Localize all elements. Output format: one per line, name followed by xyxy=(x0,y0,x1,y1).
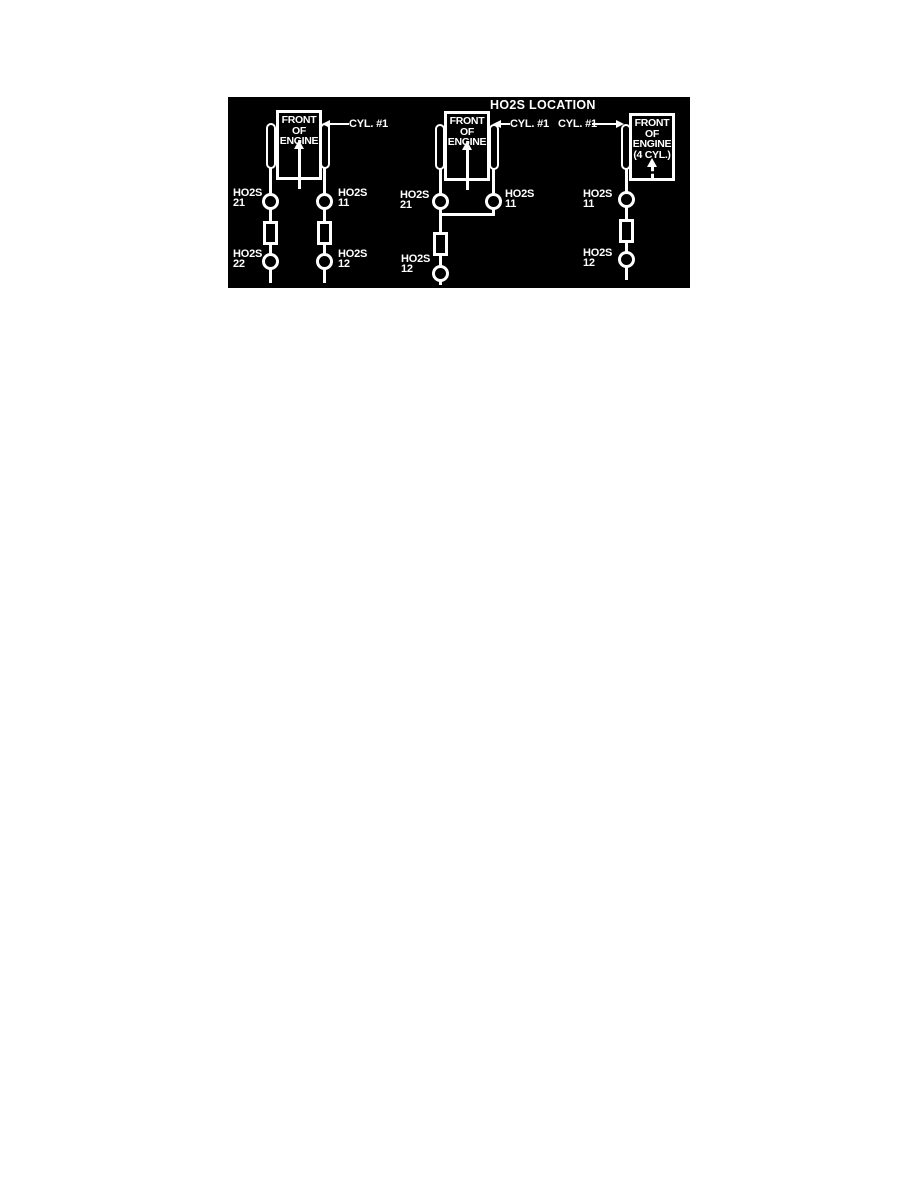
ho2s-22-sensor-icon xyxy=(262,253,279,270)
catalytic-converter-icon xyxy=(619,219,634,243)
manual-page: { "figure": { "title": "HO2S LOCATION", … xyxy=(0,0,918,1188)
ho2s-11-sensor-icon xyxy=(618,191,635,208)
ho2s-21-sensor-icon xyxy=(262,193,279,210)
ho2s-11-sensor-icon xyxy=(316,193,333,210)
ho2s-21-sensor-icon xyxy=(432,193,449,210)
catalytic-converter-icon xyxy=(433,232,448,256)
ho2s-21-label: HO2S 21 xyxy=(400,190,429,210)
front-arrow-shaft xyxy=(298,148,301,189)
ho2s-11-sensor-icon xyxy=(485,193,502,210)
right-manifold-icon xyxy=(489,124,499,170)
cyl1-arrow-icon xyxy=(322,120,330,128)
left-manifold-icon xyxy=(266,123,276,169)
right-catalytic-converter-icon xyxy=(317,221,332,245)
front-arrow-shaft xyxy=(466,149,469,190)
front-arrow-shaft xyxy=(651,166,654,179)
cyl1-leader-line xyxy=(592,123,616,125)
ho2s-12-sensor-icon xyxy=(432,265,449,282)
ho2s-12-sensor-icon xyxy=(316,253,333,270)
ho2s-11-label: HO2S 11 xyxy=(338,188,367,208)
ho2s-12-label: HO2S 12 xyxy=(338,249,367,269)
ho2s-22-label: HO2S 22 xyxy=(233,249,262,269)
ho2s-11-label: HO2S 11 xyxy=(505,189,534,209)
cyl1-arrow-icon xyxy=(616,120,624,128)
cyl1-leader-line xyxy=(329,123,349,125)
left-catalytic-converter-icon xyxy=(263,221,278,245)
ho2s-11-label: HO2S 11 xyxy=(583,189,612,209)
cyl1-label: CYL. #1 xyxy=(510,118,549,130)
y-pipe-junction xyxy=(439,213,495,216)
ho2s-12-label: HO2S 12 xyxy=(583,248,612,268)
ho2s-12-sensor-icon xyxy=(618,251,635,268)
figure-title: HO2S LOCATION xyxy=(490,98,596,112)
cyl1-label: CYL. #1 xyxy=(349,118,388,130)
cyl1-leader-line xyxy=(500,123,510,125)
ho2s-21-label: HO2S 21 xyxy=(233,188,262,208)
cyl1-arrow-icon xyxy=(493,120,501,128)
ho2s-12-label: HO2S 12 xyxy=(401,254,430,274)
ho2s-location-figure: HO2S LOCATION FRONT OF ENGINE HO2S 21 HO… xyxy=(228,97,690,288)
